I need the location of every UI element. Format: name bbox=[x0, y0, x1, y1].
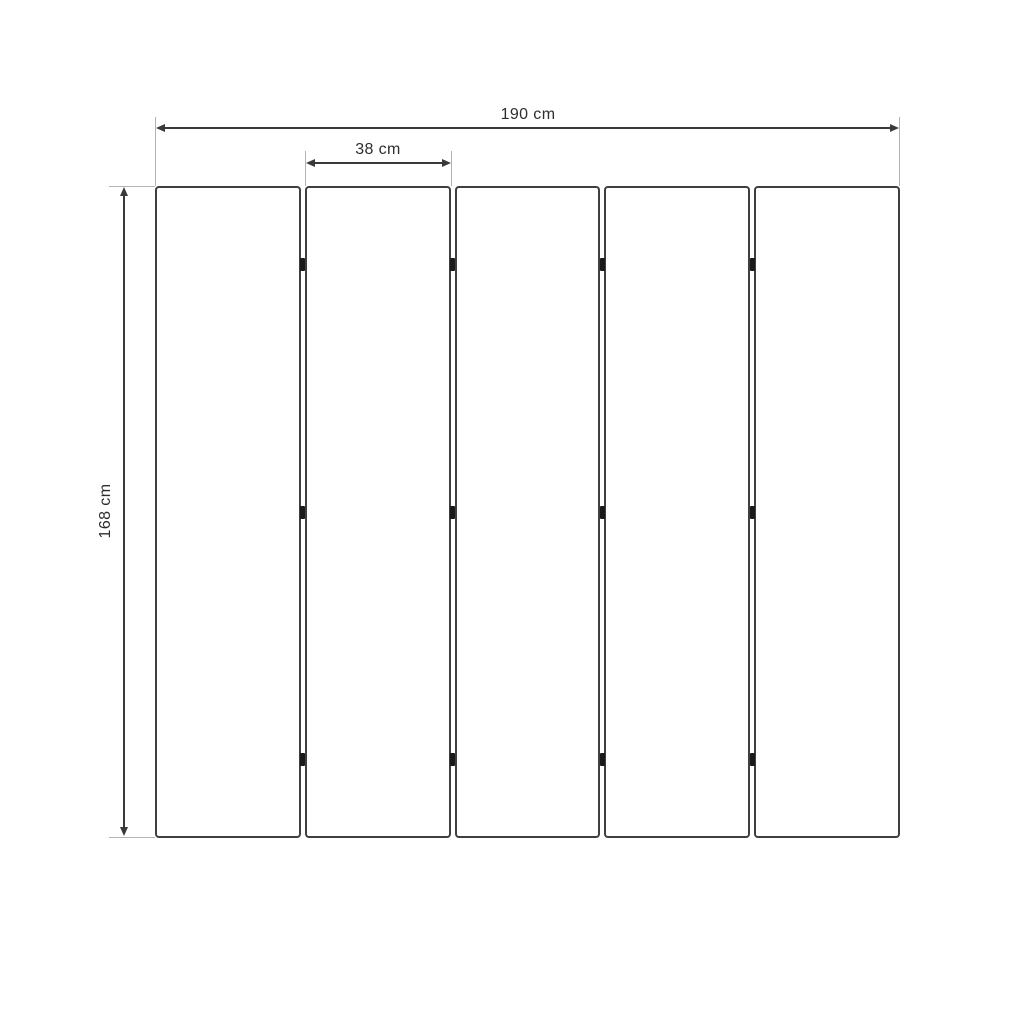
hinge-mark bbox=[450, 258, 455, 271]
panel-width-dimension-line bbox=[313, 162, 444, 164]
panel-group bbox=[155, 186, 900, 838]
total-width-dimension-line bbox=[162, 127, 894, 129]
arrow-up-icon bbox=[120, 187, 128, 196]
hinge-mark bbox=[300, 506, 305, 519]
hinge-mark bbox=[600, 753, 605, 766]
hinge-mark bbox=[750, 753, 755, 766]
hinge-mark bbox=[750, 506, 755, 519]
panel-width-dimension-label: 38 cm bbox=[355, 141, 401, 159]
dimension-diagram: 190 cm 38 cm 168 cm bbox=[0, 0, 1024, 1024]
total-width-dimension-label: 190 cm bbox=[501, 106, 556, 124]
hinge-mark bbox=[600, 506, 605, 519]
panel bbox=[604, 186, 750, 838]
extension-line-total-right bbox=[899, 117, 900, 186]
height-dimension-label: 168 cm bbox=[97, 484, 115, 539]
hinge-mark bbox=[750, 258, 755, 271]
hinge-mark bbox=[450, 753, 455, 766]
arrow-left-icon bbox=[306, 159, 315, 167]
extension-line-height-bottom bbox=[109, 837, 155, 838]
hinge-mark bbox=[450, 506, 455, 519]
arrow-left-icon bbox=[156, 124, 165, 132]
arrow-right-icon bbox=[890, 124, 899, 132]
height-dimension-line bbox=[123, 194, 125, 829]
panel bbox=[305, 186, 451, 838]
extension-line-height-top bbox=[109, 186, 155, 187]
panel bbox=[455, 186, 601, 838]
hinge-mark bbox=[300, 258, 305, 271]
hinge-mark bbox=[300, 753, 305, 766]
panel bbox=[754, 186, 900, 838]
hinge-mark bbox=[600, 258, 605, 271]
extension-line-panel-left bbox=[305, 151, 306, 186]
arrow-right-icon bbox=[442, 159, 451, 167]
arrow-down-icon bbox=[120, 827, 128, 836]
extension-line-panel-right bbox=[451, 151, 452, 186]
panel bbox=[155, 186, 301, 838]
